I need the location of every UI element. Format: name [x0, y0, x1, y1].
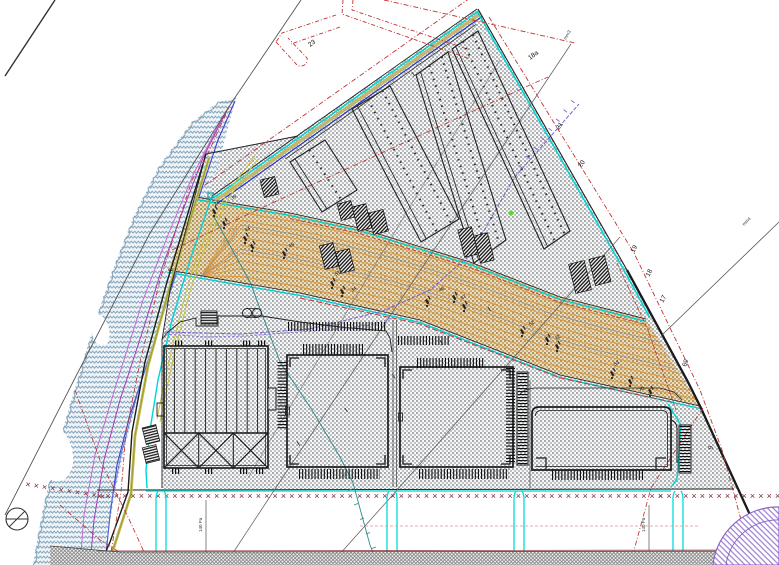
svg-text:×××××××××××××××: ××××××××××××××× — [658, 491, 779, 501]
svg-text:××××××××××××××××××××××××××××××: ××××××××××××××××××××××××××××××××××××× — [357, 491, 666, 501]
svg-text:140 Pa: 140 Pa — [198, 517, 203, 532]
svg-text:××××××××××××××××××××××××××××××: ××××××××××××××××××××××××××××××× — [97, 491, 356, 501]
svg-text:140 Pa: 140 Pa — [641, 517, 646, 532]
